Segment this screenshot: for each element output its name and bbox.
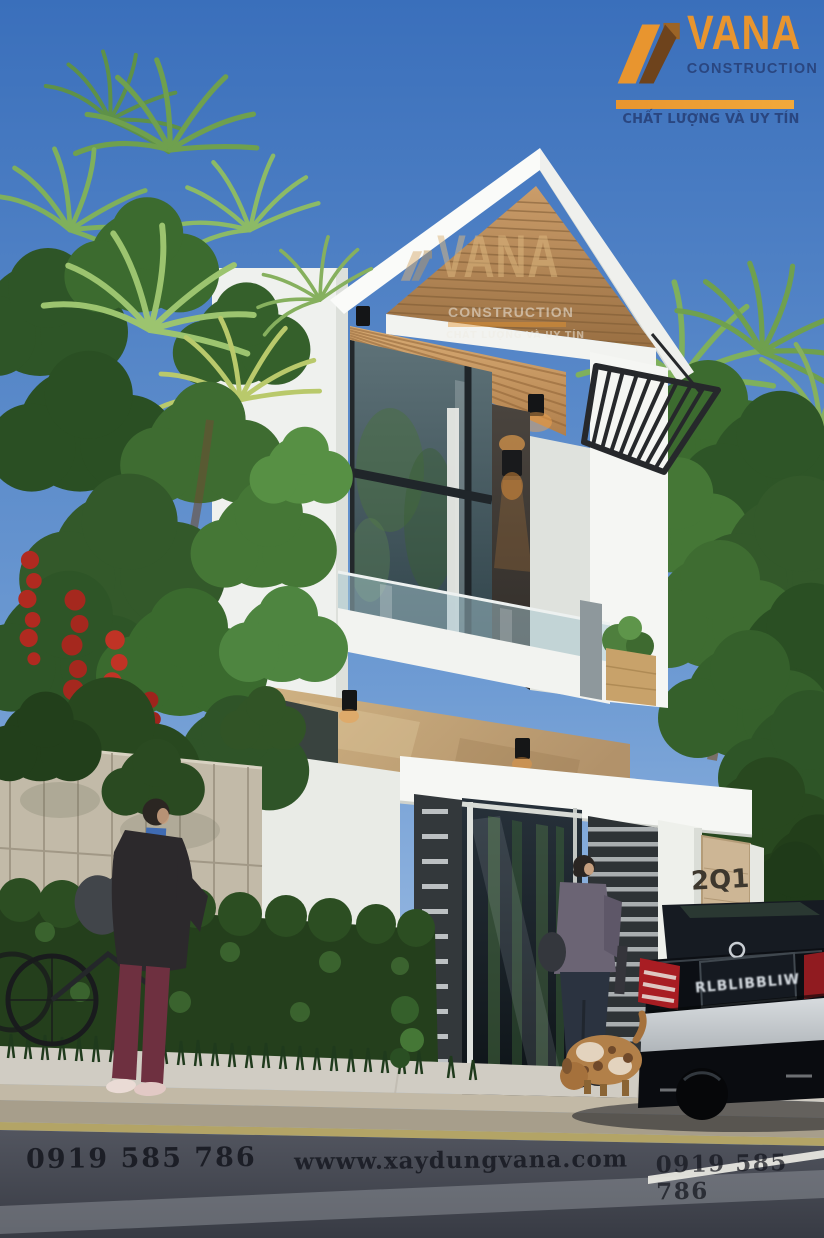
logo-subtitle: CONSTRUCTION [687, 61, 818, 77]
phone-number-left: 0919 585 786 [26, 1142, 257, 1175]
watermark-name: VANA [437, 230, 559, 284]
watermark-mark-icon [400, 230, 432, 302]
watermark-tagline: CHẤT LƯỢNG VÀ UY TÍN [446, 330, 590, 341]
vana-logo: VANA CONSTRUCTION CHẤT LƯỢNG VÀ UY TÍN [616, 12, 818, 127]
website-url: wwww.xaydungvana.com [294, 1146, 628, 1176]
watermark-bar [448, 322, 566, 327]
logo-divider-bar [616, 100, 794, 109]
car-wheel [676, 1068, 728, 1120]
watermark-subtitle: CONSTRUCTION [448, 304, 590, 320]
tail-light-left [638, 958, 680, 1010]
logo-tagline: CHẤT LƯỢNG VÀ UY TÍN [616, 112, 806, 127]
vana-watermark: VANA CONSTRUCTION CHẤT LƯỢNG VÀ UY TÍN [400, 230, 590, 341]
vana-logo-mark-icon [616, 12, 680, 96]
wall-sconce-icon [342, 690, 357, 711]
phone-number-right: 0919 585 786 [656, 1149, 824, 1206]
logo-name: VANA [687, 12, 809, 56]
render-illustration: 2Q1- 8RUJ [0, 0, 824, 1238]
tail-light-right [804, 952, 824, 999]
exterior-render: 2Q1- 8RUJ [0, 0, 824, 1238]
downlight-icon [356, 306, 370, 326]
wall-sconce-icon [515, 738, 530, 759]
